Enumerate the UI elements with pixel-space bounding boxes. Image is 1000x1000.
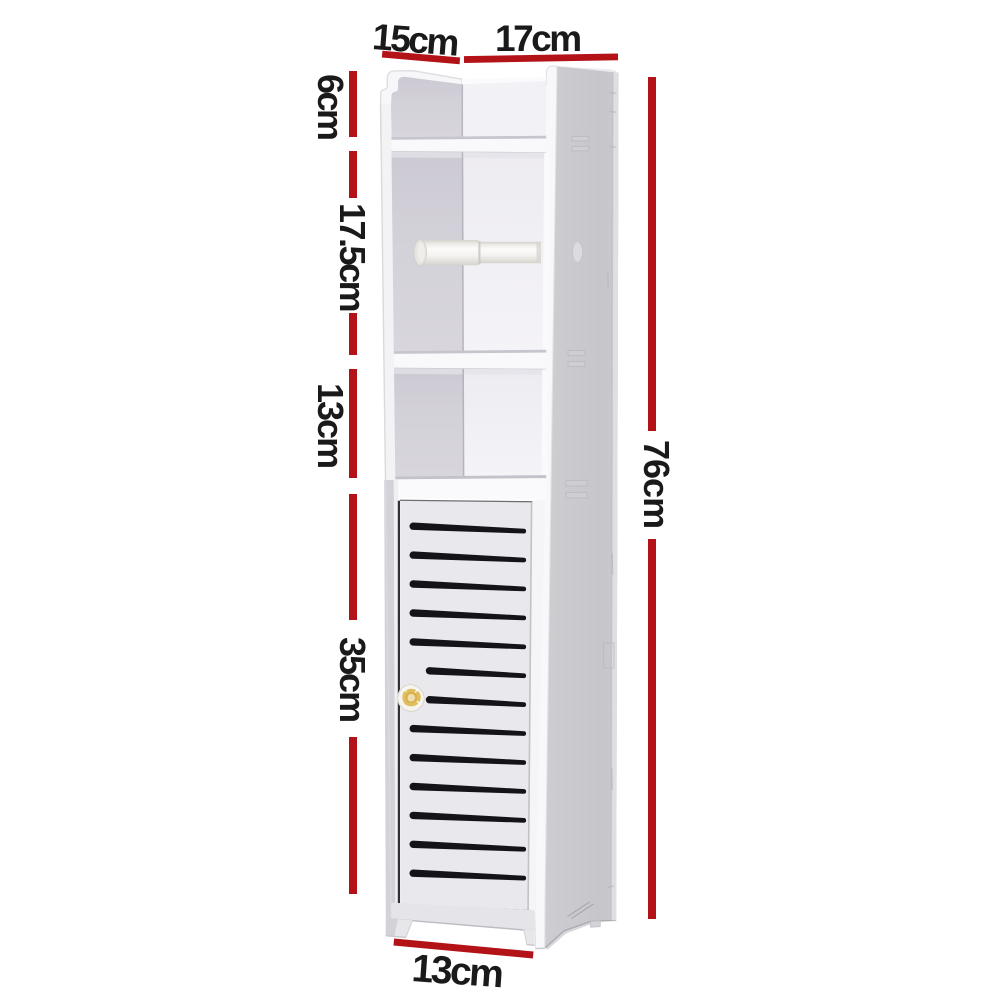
svg-text:13cm: 13cm xyxy=(310,383,351,467)
svg-text:6cm: 6cm xyxy=(310,74,351,139)
svg-text:35cm: 35cm xyxy=(332,637,373,721)
svg-text:17cm: 17cm xyxy=(495,18,580,59)
svg-text:17.5cm: 17.5cm xyxy=(332,203,373,311)
svg-text:76cm: 76cm xyxy=(636,440,677,528)
svg-text:13cm: 13cm xyxy=(410,947,503,996)
svg-text:15cm: 15cm xyxy=(371,16,459,64)
